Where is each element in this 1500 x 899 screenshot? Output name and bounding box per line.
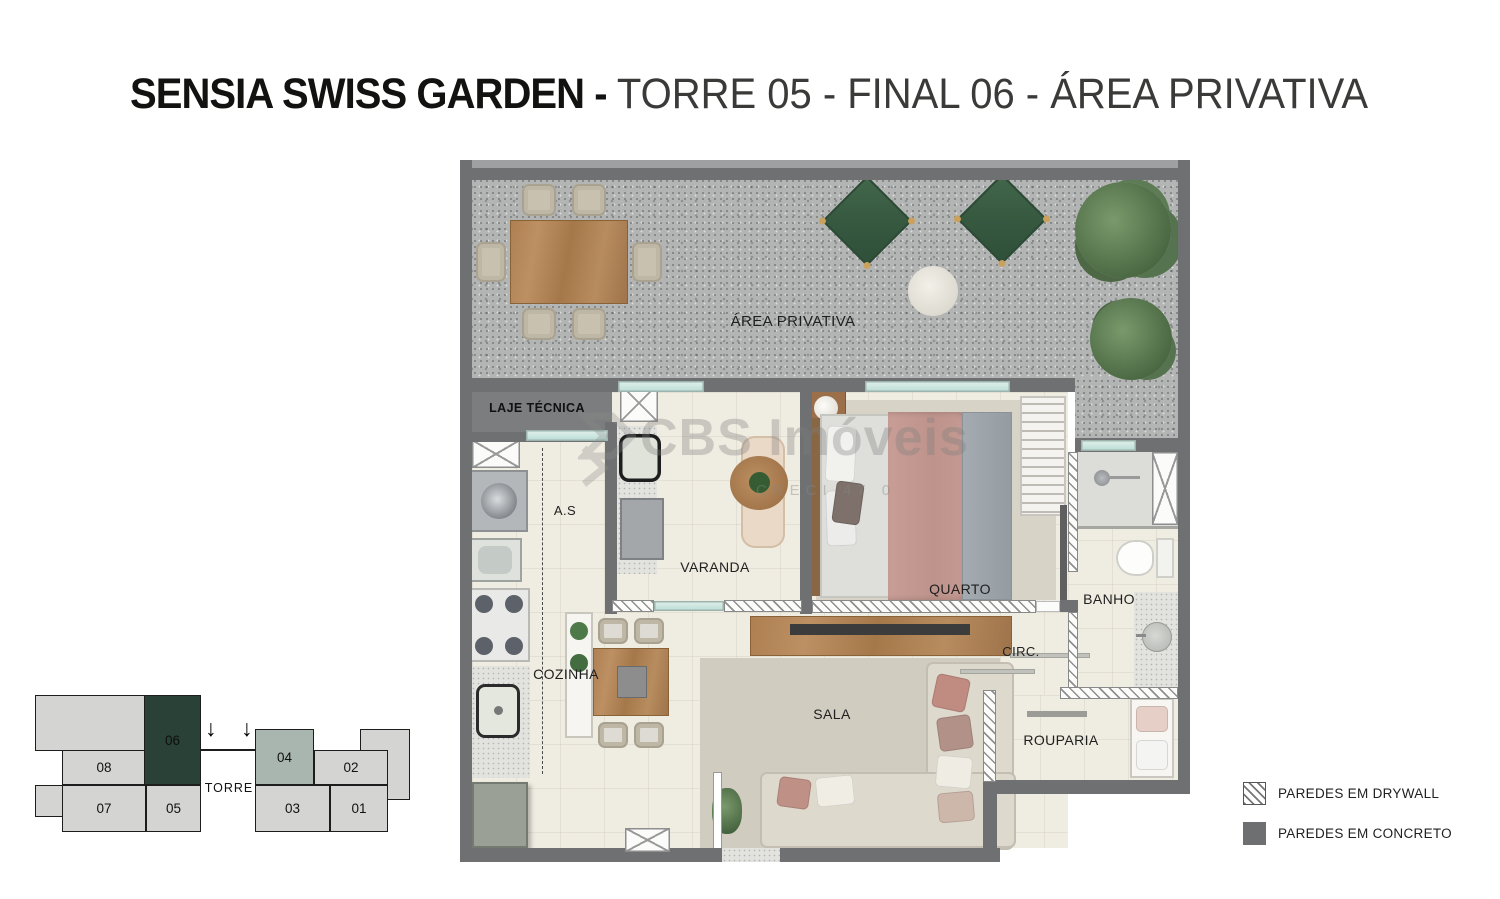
keyplan-slab (35, 695, 147, 751)
keyplan-unit-04: 04 (255, 729, 314, 785)
toilet-tank (1156, 538, 1174, 578)
entrance-arrow-icon: ↓ (241, 717, 253, 740)
unit-label: 05 (166, 801, 181, 816)
floorplan-page: SENSIA SWISS GARDEN - TORRE 05 - FINAL 0… (0, 0, 1500, 899)
kitchen-sink (476, 684, 520, 738)
entrance-arrow-icon: ↓ (205, 717, 217, 740)
room-label-rouparia: ROUPARIA (991, 732, 1131, 748)
unit-label: 02 (343, 760, 358, 775)
towel-pink (1136, 706, 1168, 732)
floor-plan: ÁREA PRIVATIVA LAJE TÉCNICA A.S VARANDA … (460, 160, 1190, 870)
tv (790, 624, 970, 635)
terrace-chair (632, 242, 662, 282)
terrace-floor-right-column (1075, 378, 1178, 440)
wall-terrace-left (460, 378, 612, 392)
watermark-logo (578, 412, 636, 488)
keyplan-unit-07: 07 (62, 785, 146, 832)
sofa-pillow (935, 754, 974, 789)
dining-chair (634, 618, 664, 644)
sofa-pillow (776, 776, 812, 810)
drywall-varanda (724, 600, 802, 612)
burner (475, 595, 493, 613)
dining-chair (634, 722, 664, 748)
keyplan-unit-03: 03 (255, 785, 330, 832)
entry-threshold (722, 848, 780, 862)
wall-vent-box (625, 828, 670, 852)
projection-dashed-line (542, 448, 543, 774)
fridge (472, 782, 528, 848)
drywall-swatch-icon (1243, 782, 1266, 805)
sofa-pillow (931, 673, 971, 713)
unit-label: 08 (96, 760, 111, 775)
drywall-banho (1068, 452, 1078, 572)
drywall-varanda (612, 600, 654, 612)
terrace-chair (572, 184, 606, 216)
watermark-brand: CBS Imóveis (640, 408, 969, 468)
keyplan-unit-02: 02 (314, 750, 388, 785)
drywall-rouparia-top (1060, 687, 1178, 699)
terrace-dining-table (510, 220, 628, 304)
dining-chair (598, 618, 628, 644)
terrace-chair (572, 308, 606, 340)
parapet (460, 160, 1190, 168)
drain (494, 706, 503, 715)
vanity-sink (1142, 622, 1172, 652)
terrace-chair (522, 308, 556, 340)
burner (475, 637, 493, 655)
torre-label: TORRE (199, 781, 259, 795)
room-label-varanda: VARANDA (655, 559, 775, 575)
room-label-as: A.S (535, 503, 595, 518)
legend-drywall-label: PAREDES EM DRYWALL (1278, 786, 1439, 801)
wall-rouparia-bottom (983, 780, 1190, 794)
varanda-sala-door (654, 601, 724, 611)
dining-table (593, 648, 669, 716)
door-leaf (960, 669, 1035, 674)
legend-concrete-label: PAREDES EM CONCRETO (1278, 826, 1452, 841)
bathroom-cabinet (1152, 452, 1178, 525)
project-name: SENSIA SWISS GARDEN - (130, 70, 617, 118)
laundry-sink (470, 538, 522, 582)
grill-cabinet (620, 498, 664, 560)
shower-arm (1110, 476, 1140, 479)
keyplan-unit-05: 05 (146, 785, 201, 832)
watermark-creci: CRECI 47 0 (756, 482, 896, 499)
sofa-pillow (815, 774, 856, 808)
sofa-pillow (936, 714, 974, 752)
linen-shelves (1130, 698, 1174, 778)
keyplan-unit-08: 08 (62, 750, 146, 785)
dining-chair (598, 722, 628, 748)
quarto-terrace-door (865, 381, 1010, 392)
quarto-door-threshold (1036, 601, 1060, 612)
title-details: TORRE 05 - FINAL 06 - ÁREA PRIVATIVA (617, 70, 1368, 118)
unit-label: 01 (351, 801, 366, 816)
shelf-bar (1027, 711, 1087, 717)
unit-label: 06 (165, 733, 180, 748)
room-label-banho: BANHO (1059, 591, 1159, 607)
unit-label: 04 (277, 750, 292, 765)
concrete-swatch-icon (1243, 822, 1266, 845)
banho-window (1081, 440, 1136, 451)
terrace-chair (522, 184, 556, 216)
potted-plant (1090, 298, 1172, 380)
keyplan-unit-06-selected: 06 (144, 695, 201, 785)
varanda-terrace-door (618, 381, 704, 392)
stove (468, 588, 530, 662)
shower-divider (1078, 526, 1178, 529)
towel-white (1136, 740, 1168, 770)
sofa-pillow (937, 790, 975, 823)
room-label-area-privativa: ÁREA PRIVATIVA (693, 313, 893, 330)
drywall-quarto (812, 600, 1036, 613)
keyplan-unit-01: 01 (330, 785, 388, 832)
drywall-banho (1068, 612, 1078, 690)
gray-throw (962, 412, 1012, 600)
keyplan-slab (35, 785, 63, 817)
unit-label: 07 (96, 801, 111, 816)
sliding-door (1060, 505, 1067, 600)
washing-machine (470, 470, 528, 532)
room-label-quarto: QUARTO (900, 581, 1020, 597)
entry-door-leaf (713, 772, 722, 850)
burner (505, 595, 523, 613)
wardrobe (1020, 396, 1066, 516)
wall-left (460, 160, 472, 862)
tv-console (750, 616, 1012, 656)
unit-label: 03 (285, 801, 300, 816)
toilet (1116, 540, 1154, 576)
legend-concrete-row: PAREDES EM CONCRETO (1243, 822, 1452, 845)
laundry-basin (478, 546, 512, 574)
keyplan-facade-line (201, 749, 257, 751)
shaft-box (472, 440, 520, 468)
faucet (1136, 634, 1146, 637)
wall-right (1178, 160, 1190, 794)
shower-head (1094, 470, 1110, 486)
legend-drywall-row: PAREDES EM DRYWALL (1243, 782, 1439, 805)
page-title: SENSIA SWISS GARDEN - TORRE 05 - FINAL 0… (130, 70, 1368, 119)
room-label-cozinha: COZINHA (506, 666, 626, 682)
room-label-sala: SALA (772, 706, 892, 722)
terrace-side-table (908, 266, 958, 316)
terrace-chair (476, 242, 506, 282)
potted-plant (1075, 182, 1171, 278)
tower-keyplan: 08 06 04 02 07 05 03 01 ↓ ↓ TORRE (33, 693, 413, 848)
wall-top (460, 168, 1190, 180)
room-label-circ: CIRC. (981, 644, 1061, 659)
washer-drum (481, 483, 517, 519)
plant (570, 622, 588, 640)
burner (505, 637, 523, 655)
